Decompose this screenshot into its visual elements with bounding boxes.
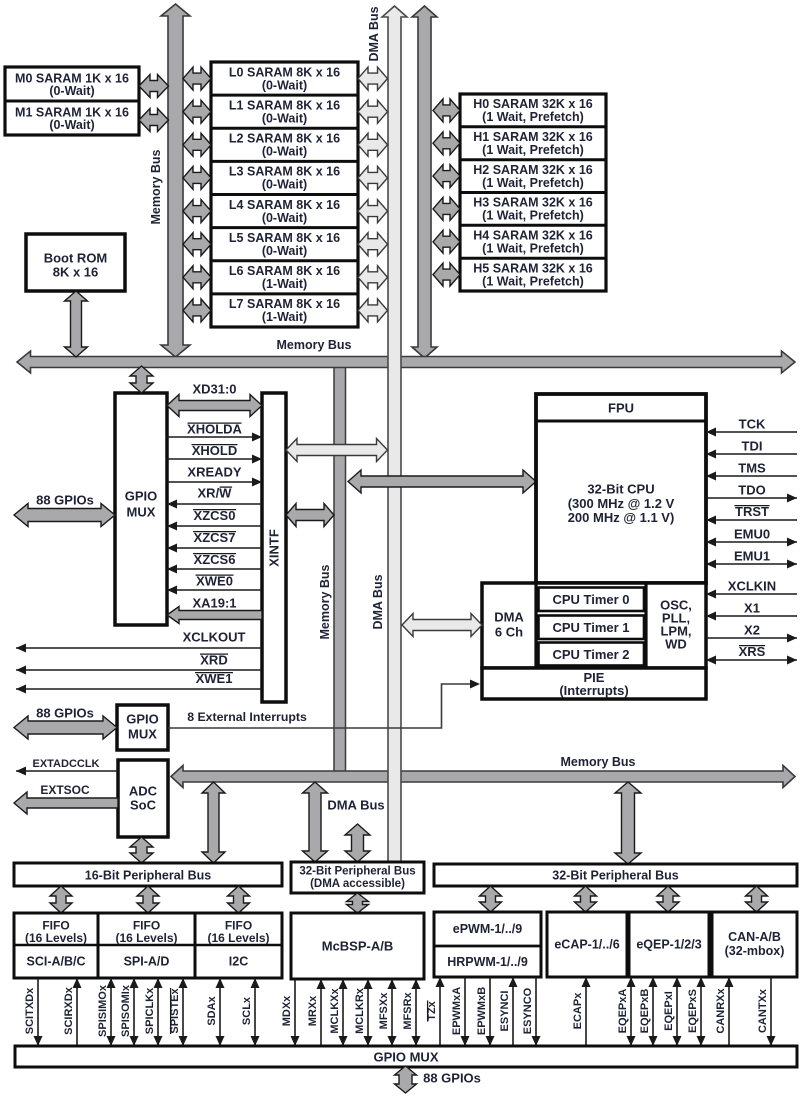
- svg-text:EMU0: EMU0: [734, 527, 770, 542]
- svg-text:DMA: DMA: [494, 610, 524, 625]
- svg-text:8 External Interrupts: 8 External Interrupts: [187, 710, 307, 724]
- svg-text:(16 Levels): (16 Levels): [25, 931, 87, 945]
- svg-text:XREADY: XREADY: [187, 465, 242, 480]
- svg-text:Memory Bus: Memory Bus: [276, 338, 351, 352]
- svg-text:Memory Bus: Memory Bus: [560, 755, 635, 769]
- svg-text:(16 Levels): (16 Levels): [115, 931, 177, 945]
- svg-text:SCITXDx: SCITXDx: [24, 987, 36, 1034]
- svg-text:(1-Wait): (1-Wait): [262, 277, 307, 291]
- svg-text:SCIRXDx: SCIRXDx: [63, 986, 75, 1035]
- svg-text:L3 SARAM 8K x 16: L3 SARAM 8K x 16: [229, 165, 340, 179]
- svg-text:L4 SARAM 8K x 16: L4 SARAM 8K x 16: [229, 198, 340, 212]
- svg-text:TDO: TDO: [738, 483, 765, 498]
- svg-text:X1: X1: [744, 601, 760, 616]
- svg-text:SCLx: SCLx: [241, 996, 253, 1025]
- svg-text:L6 SARAM 8K x 16: L6 SARAM 8K x 16: [229, 264, 340, 278]
- svg-text:XZCS6: XZCS6: [194, 552, 236, 567]
- svg-text:200 MHz @ 1.1 V): 200 MHz @ 1.1 V): [568, 510, 675, 525]
- svg-text:L0 SARAM 8K x 16: L0 SARAM 8K x 16: [229, 65, 340, 79]
- svg-text:(0-Wait): (0-Wait): [262, 78, 307, 92]
- svg-text:EXTSOC: EXTSOC: [40, 783, 90, 797]
- svg-text:EXTADCCLK: EXTADCCLK: [32, 758, 99, 770]
- svg-text:(0-Wait): (0-Wait): [49, 118, 94, 132]
- svg-text:SPICLKx: SPICLKx: [144, 987, 156, 1034]
- svg-text:(1 Wait, Prefetch): (1 Wait, Prefetch): [482, 110, 584, 124]
- svg-text:H0 SARAM 32K x 16: H0 SARAM 32K x 16: [473, 97, 593, 111]
- svg-text:ESYNCI: ESYNCI: [499, 991, 511, 1032]
- svg-text:(300 MHz @ 1.2 V: (300 MHz @ 1.2 V: [568, 496, 675, 511]
- svg-text:XINTF: XINTF: [267, 529, 282, 567]
- svg-text:(1 Wait, Prefetch): (1 Wait, Prefetch): [482, 143, 584, 157]
- svg-text:EPWMxA: EPWMxA: [451, 987, 463, 1035]
- svg-text:XWE1: XWE1: [196, 671, 233, 686]
- svg-text:MCLKXx: MCLKXx: [329, 988, 341, 1034]
- svg-text:ePWM-1/../9: ePWM-1/../9: [453, 922, 523, 936]
- svg-text:XRS: XRS: [739, 644, 766, 659]
- svg-text:H2 SARAM 32K x 16: H2 SARAM 32K x 16: [473, 163, 593, 177]
- svg-text:CANTXx: CANTXx: [757, 988, 769, 1033]
- svg-text:TMS: TMS: [738, 461, 766, 476]
- svg-text:CANRXx: CANRXx: [715, 988, 727, 1034]
- svg-text:XD31:0: XD31:0: [192, 382, 236, 397]
- svg-text:(Interrupts): (Interrupts): [559, 683, 628, 698]
- svg-text:XCLKOUT: XCLKOUT: [183, 630, 246, 645]
- svg-text:(0-Wait): (0-Wait): [262, 145, 307, 159]
- svg-text:(0-Wait): (0-Wait): [262, 211, 307, 225]
- svg-text:XCLKIN: XCLKIN: [728, 579, 776, 594]
- svg-text:88 GPIOs: 88 GPIOs: [36, 706, 94, 721]
- svg-text:EPWMxB: EPWMxB: [476, 987, 488, 1035]
- svg-text:XA19:1: XA19:1: [192, 596, 236, 611]
- svg-text:DMA Bus: DMA Bus: [327, 798, 384, 813]
- svg-text:TDI: TDI: [742, 439, 763, 454]
- svg-text:L7 SARAM 8K x 16: L7 SARAM 8K x 16: [229, 297, 340, 311]
- svg-text:SPI-A/D: SPI-A/D: [124, 955, 170, 969]
- svg-text:I2C: I2C: [229, 955, 248, 969]
- svg-text:DMA Bus: DMA Bus: [367, 6, 381, 61]
- svg-text:MDXx: MDXx: [281, 995, 293, 1026]
- svg-text:HRPWM-1/../9: HRPWM-1/../9: [447, 955, 528, 969]
- svg-text:XZCS7: XZCS7: [194, 530, 236, 545]
- svg-text:McBSP-A/B: McBSP-A/B: [322, 939, 394, 954]
- svg-text:Boot ROM: Boot ROM: [44, 251, 108, 266]
- svg-text:L1 SARAM 8K x 16: L1 SARAM 8K x 16: [229, 98, 340, 112]
- svg-text:Memory Bus: Memory Bus: [149, 149, 163, 224]
- svg-text:(0-Wait): (0-Wait): [262, 111, 307, 125]
- svg-text:(1 Wait, Prefetch): (1 Wait, Prefetch): [482, 176, 584, 190]
- svg-text:(1 Wait, Prefetch): (1 Wait, Prefetch): [482, 241, 584, 255]
- svg-text:H4 SARAM 32K x 16: H4 SARAM 32K x 16: [473, 228, 593, 242]
- svg-text:88 GPIOs: 88 GPIOs: [423, 1071, 481, 1086]
- svg-text:32-Bit Peripheral Bus: 32-Bit Peripheral Bus: [299, 866, 415, 878]
- svg-text:L2 SARAM 8K x 16: L2 SARAM 8K x 16: [229, 132, 340, 146]
- svg-text:8K x 16: 8K x 16: [53, 265, 99, 280]
- svg-text:MFSXx: MFSXx: [378, 992, 390, 1030]
- svg-text:CAN-A/B: CAN-A/B: [728, 930, 781, 944]
- svg-text:32-Bit CPU: 32-Bit CPU: [587, 482, 654, 497]
- svg-text:L5 SARAM 8K x 16: L5 SARAM 8K x 16: [229, 231, 340, 245]
- svg-text:MRXx: MRXx: [307, 995, 319, 1026]
- svg-text:88 GPIOs: 88 GPIOs: [36, 493, 94, 508]
- svg-text:FPU: FPU: [608, 401, 634, 416]
- svg-text:H1 SARAM 32K x 16: H1 SARAM 32K x 16: [473, 130, 593, 144]
- svg-text:EQEPxS: EQEPxS: [687, 989, 699, 1033]
- svg-text:(0-Wait): (0-Wait): [262, 244, 307, 258]
- svg-text:WD: WD: [665, 637, 687, 652]
- svg-text:eQEP-1/2/3: eQEP-1/2/3: [636, 938, 701, 952]
- svg-text:XWE0: XWE0: [196, 574, 233, 589]
- svg-text:CPU Timer 0: CPU Timer 0: [552, 592, 629, 607]
- svg-text:MFSRx: MFSRx: [402, 991, 414, 1029]
- svg-text:DMA Bus: DMA Bus: [371, 574, 385, 629]
- svg-text:SoC: SoC: [130, 798, 157, 813]
- svg-text:6 Ch: 6 Ch: [495, 625, 523, 640]
- svg-text:ESYNCO: ESYNCO: [522, 987, 534, 1034]
- svg-text:EQEPxA: EQEPxA: [617, 989, 629, 1034]
- svg-text:EMU1: EMU1: [734, 549, 770, 564]
- svg-text:(0-Wait): (0-Wait): [262, 178, 307, 192]
- svg-text:X2: X2: [744, 623, 760, 638]
- svg-text:16-Bit Peripheral Bus: 16-Bit Peripheral Bus: [85, 869, 211, 883]
- svg-text:MUX: MUX: [128, 727, 157, 742]
- svg-text:32-Bit Peripheral Bus: 32-Bit Peripheral Bus: [552, 869, 678, 883]
- svg-text:CPU Timer 2: CPU Timer 2: [552, 647, 629, 662]
- svg-text:H5 SARAM 32K x 16: H5 SARAM 32K x 16: [473, 261, 593, 275]
- svg-text:SPISIMOx: SPISIMOx: [97, 984, 109, 1037]
- svg-text:eCAP-1/../6: eCAP-1/../6: [554, 938, 619, 952]
- svg-text:SPISOMIx: SPISOMIx: [120, 984, 132, 1037]
- svg-text:(1 Wait, Prefetch): (1 Wait, Prefetch): [482, 209, 584, 223]
- svg-text:(16 Levels): (16 Levels): [207, 931, 269, 945]
- svg-text:GPIO MUX: GPIO MUX: [373, 1050, 438, 1065]
- svg-text:TCK: TCK: [739, 417, 766, 432]
- svg-text:ADC: ADC: [129, 784, 158, 799]
- svg-text:(0-Wait): (0-Wait): [49, 84, 94, 98]
- svg-text:(1-Wait): (1-Wait): [262, 310, 307, 324]
- svg-text:XRD: XRD: [200, 653, 227, 668]
- svg-text:MCLKRx: MCLKRx: [354, 987, 366, 1034]
- svg-text:SCI-A/B/C: SCI-A/B/C: [26, 955, 85, 969]
- svg-text:SDAx: SDAx: [206, 995, 218, 1025]
- svg-text:GPIO: GPIO: [126, 712, 159, 727]
- svg-text:(32-mbox): (32-mbox): [725, 944, 785, 958]
- svg-text:Memory Bus: Memory Bus: [318, 564, 332, 639]
- svg-text:MUX: MUX: [127, 505, 156, 520]
- svg-text:(DMA accessible): (DMA accessible): [310, 878, 405, 890]
- svg-text:ECAPx: ECAPx: [572, 992, 584, 1030]
- svg-text:CPU Timer 1: CPU Timer 1: [552, 620, 629, 635]
- svg-text:H3 SARAM 32K x 16: H3 SARAM 32K x 16: [473, 196, 593, 210]
- svg-text:GPIO: GPIO: [125, 489, 158, 504]
- svg-text:EQEPxB: EQEPxB: [639, 989, 651, 1034]
- svg-text:(1 Wait, Prefetch): (1 Wait, Prefetch): [482, 274, 584, 288]
- svg-text:EQEPxI: EQEPxI: [663, 991, 675, 1031]
